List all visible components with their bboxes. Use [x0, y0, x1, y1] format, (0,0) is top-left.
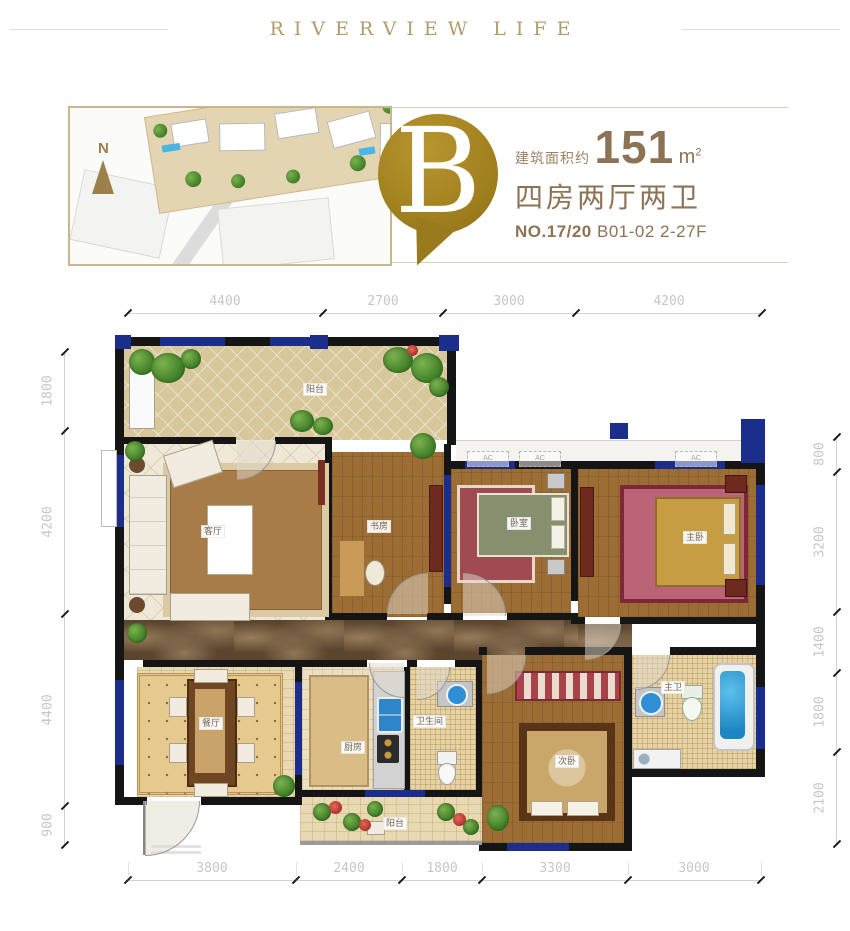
compass-label: N — [98, 140, 109, 157]
window — [365, 790, 425, 797]
room-label-bedroom3: 次卧 — [555, 755, 579, 768]
dim-label: 4200 — [41, 506, 56, 537]
area-row: 建筑面积约 151 m2 — [515, 120, 707, 174]
kitchen-sink — [377, 697, 403, 733]
wall — [620, 617, 765, 624]
desk — [339, 540, 365, 597]
chair — [194, 783, 228, 797]
room-label-balcony: 阳台 — [383, 817, 407, 830]
wall — [295, 790, 367, 797]
wall — [670, 647, 765, 655]
area-unit: m2 — [679, 146, 702, 168]
corridor — [124, 620, 578, 660]
pillow — [567, 801, 599, 816]
wall — [447, 337, 456, 445]
dim-label: 3000 — [493, 294, 524, 309]
balcony-rail — [300, 841, 482, 845]
layout-text: 四房两厅两卫 — [515, 176, 707, 216]
wall — [201, 797, 302, 805]
site-block — [217, 197, 335, 266]
dining-table-top — [195, 689, 225, 773]
bath-sink — [639, 691, 663, 715]
wall — [479, 647, 487, 655]
window — [756, 485, 765, 585]
room-label-study: 书房 — [367, 520, 391, 533]
nightstand — [725, 579, 747, 597]
side-table — [129, 597, 145, 613]
dim-label: 900 — [41, 813, 56, 836]
wall — [525, 647, 632, 655]
pillow — [551, 525, 565, 549]
room-label-terrace: 阳台 — [303, 383, 327, 396]
dim-label: 3800 — [196, 861, 227, 876]
pillow — [551, 497, 565, 521]
washing-machine — [633, 749, 681, 769]
dim-label: 1800 — [41, 375, 56, 406]
dimension-top-line — [128, 313, 762, 314]
tv-cabinet — [318, 460, 325, 505]
wall-pillar — [741, 419, 765, 463]
wardrobe-bedroom3 — [515, 671, 621, 701]
nightstand — [547, 473, 565, 489]
area-label: 建筑面积约 — [515, 150, 590, 166]
kitchen-island — [309, 675, 369, 787]
ac-unit-box: AC — [519, 451, 561, 467]
wardrobe — [580, 487, 594, 577]
wall — [295, 660, 302, 682]
page-title: RIVERVIEW LIFE — [0, 18, 850, 40]
window — [295, 682, 302, 775]
chair — [194, 669, 228, 683]
wall — [624, 769, 632, 851]
unit-floors: B01-02 2-27F — [597, 222, 707, 241]
bookshelf — [429, 485, 443, 572]
chair — [169, 743, 187, 763]
window — [444, 475, 451, 587]
area-value: 151 — [594, 121, 674, 173]
bay-window — [101, 450, 117, 527]
ac-unit-box: AC — [467, 451, 509, 467]
info-rule-bottom — [390, 262, 788, 263]
wall — [143, 660, 300, 667]
dim-label: 4400 — [209, 294, 240, 309]
site-plan-thumbnail: N — [68, 106, 392, 266]
room-label-dining: 餐厅 — [199, 717, 223, 730]
bathtub-water — [720, 671, 745, 739]
dimension-left-line — [64, 352, 65, 845]
window — [756, 687, 765, 749]
dimension-right-line — [836, 437, 837, 844]
dim-label: 3300 — [539, 861, 570, 876]
dim-label: 2100 — [813, 782, 828, 813]
dim-label: 1800 — [813, 696, 828, 727]
sofa-small — [170, 593, 250, 621]
site-development-band — [144, 106, 392, 214]
nightstand — [725, 475, 747, 493]
room-label-living: 客厅 — [201, 525, 225, 538]
wall — [476, 660, 482, 797]
dim-label: 4200 — [653, 294, 684, 309]
wall-pillar — [310, 335, 328, 349]
brochure-page: RIVERVIEW LIFE N B 建筑面积约 — [0, 0, 850, 931]
unit-badge-letter: B — [378, 108, 498, 234]
dim-label: 2700 — [367, 294, 398, 309]
dim-label: 1400 — [813, 626, 828, 657]
room-label-bedroom2: 卧室 — [507, 517, 531, 530]
nightstand — [547, 559, 565, 575]
dimension-bottom-line — [128, 880, 761, 881]
pillow — [723, 503, 736, 535]
wall — [571, 617, 585, 624]
floor-plan: AC AC AC — [115, 335, 765, 855]
dim-label: 800 — [813, 442, 828, 465]
window — [160, 337, 225, 346]
desk-chair — [365, 560, 385, 586]
wall — [624, 647, 632, 769]
chair — [169, 697, 187, 717]
wall — [275, 437, 332, 444]
sofa — [129, 475, 167, 595]
pillow — [531, 801, 563, 816]
wall — [628, 769, 765, 777]
wall-pillar — [439, 335, 459, 351]
wall-pillar — [115, 335, 131, 349]
unit-specs: 建筑面积约 151 m2 四房两厅两卫 NO.17/20 B01-02 2-27… — [515, 120, 707, 242]
dim-label: 3000 — [678, 861, 709, 876]
chair — [237, 697, 255, 717]
wall — [425, 790, 482, 797]
room-label-bath: 卫生间 — [413, 715, 446, 728]
wall — [507, 613, 578, 620]
dim-label: 1800 — [426, 861, 457, 876]
room-label-master: 主卧 — [683, 531, 707, 544]
coffee-table — [207, 505, 253, 575]
wall — [427, 613, 463, 620]
ac-unit-box: AC — [675, 451, 717, 467]
dim-label: 3200 — [813, 526, 828, 557]
north-arrow-icon — [92, 160, 114, 194]
bath-sink — [446, 684, 468, 706]
dim-label: 4400 — [41, 694, 56, 725]
wall-pillar — [610, 423, 628, 439]
room-label-master-bath: 主卫 — [661, 681, 685, 694]
window — [507, 843, 569, 851]
wall — [302, 660, 367, 667]
room-label-kitchen: 厨房 — [341, 741, 365, 754]
pillow — [723, 543, 736, 575]
unit-number: NO.17/20 — [515, 222, 592, 241]
window — [115, 680, 124, 765]
wall — [571, 461, 578, 601]
stove — [377, 735, 399, 763]
wall — [325, 613, 387, 620]
wall — [407, 660, 417, 667]
chair — [237, 743, 255, 763]
dim-label: 2400 — [333, 861, 364, 876]
unit-number-row: NO.17/20 B01-02 2-27F — [515, 222, 707, 242]
